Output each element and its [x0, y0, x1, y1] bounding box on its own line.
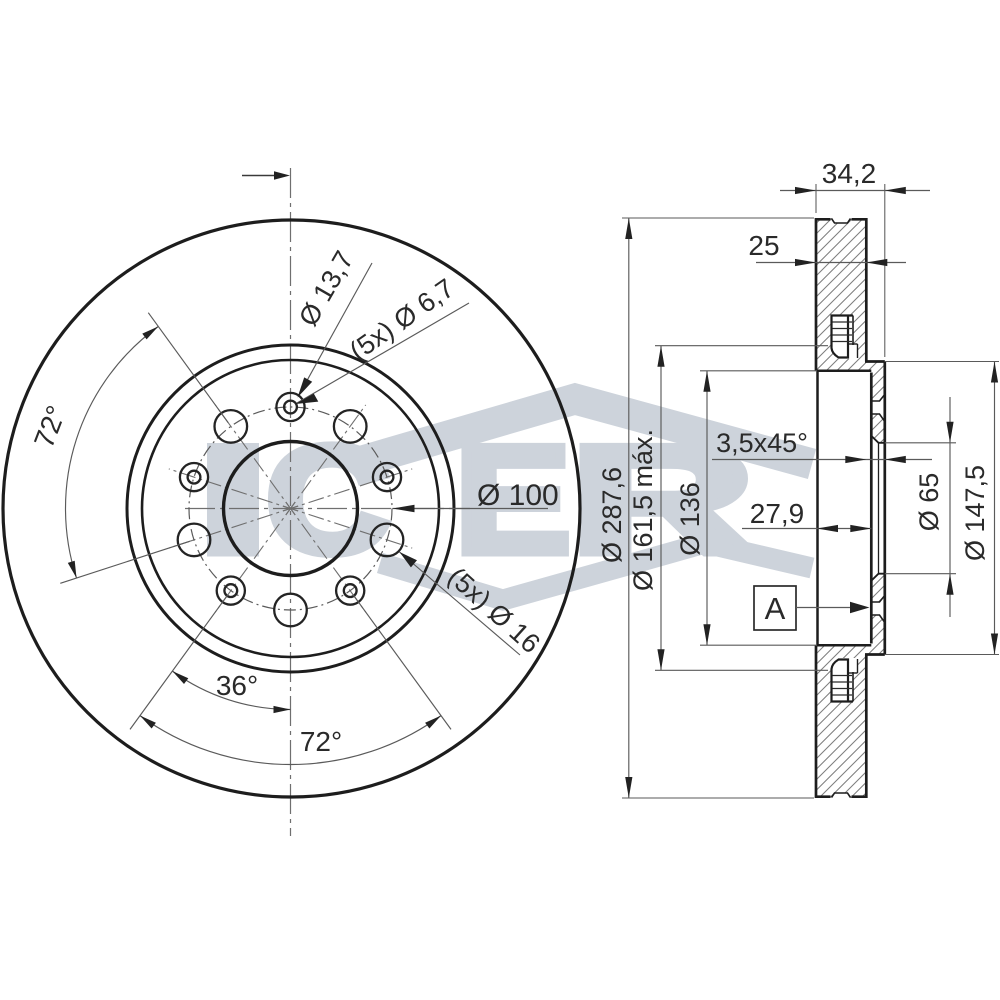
svg-text:Ø 13,7: Ø 13,7: [293, 246, 360, 331]
svg-text:Ø 161,5 máx.: Ø 161,5 máx.: [628, 429, 658, 591]
svg-text:25: 25: [748, 230, 779, 261]
svg-text:72°: 72°: [300, 726, 342, 757]
svg-text:72°: 72°: [28, 401, 72, 452]
svg-text:36°: 36°: [216, 670, 258, 701]
svg-text:3,5x45°: 3,5x45°: [716, 428, 808, 458]
svg-text:A: A: [765, 591, 786, 626]
svg-text:Ø 136: Ø 136: [675, 482, 705, 556]
svg-text:Ø 65: Ø 65: [914, 473, 944, 532]
svg-text:Ø 287,6: Ø 287,6: [597, 467, 627, 563]
svg-text:(5x) Ø 6,7: (5x) Ø 6,7: [344, 273, 460, 366]
svg-text:Ø 100: Ø 100: [477, 479, 559, 512]
svg-text:27,9: 27,9: [750, 498, 805, 529]
svg-text:Ø 147,5: Ø 147,5: [960, 465, 990, 561]
svg-text:34,2: 34,2: [822, 158, 877, 189]
